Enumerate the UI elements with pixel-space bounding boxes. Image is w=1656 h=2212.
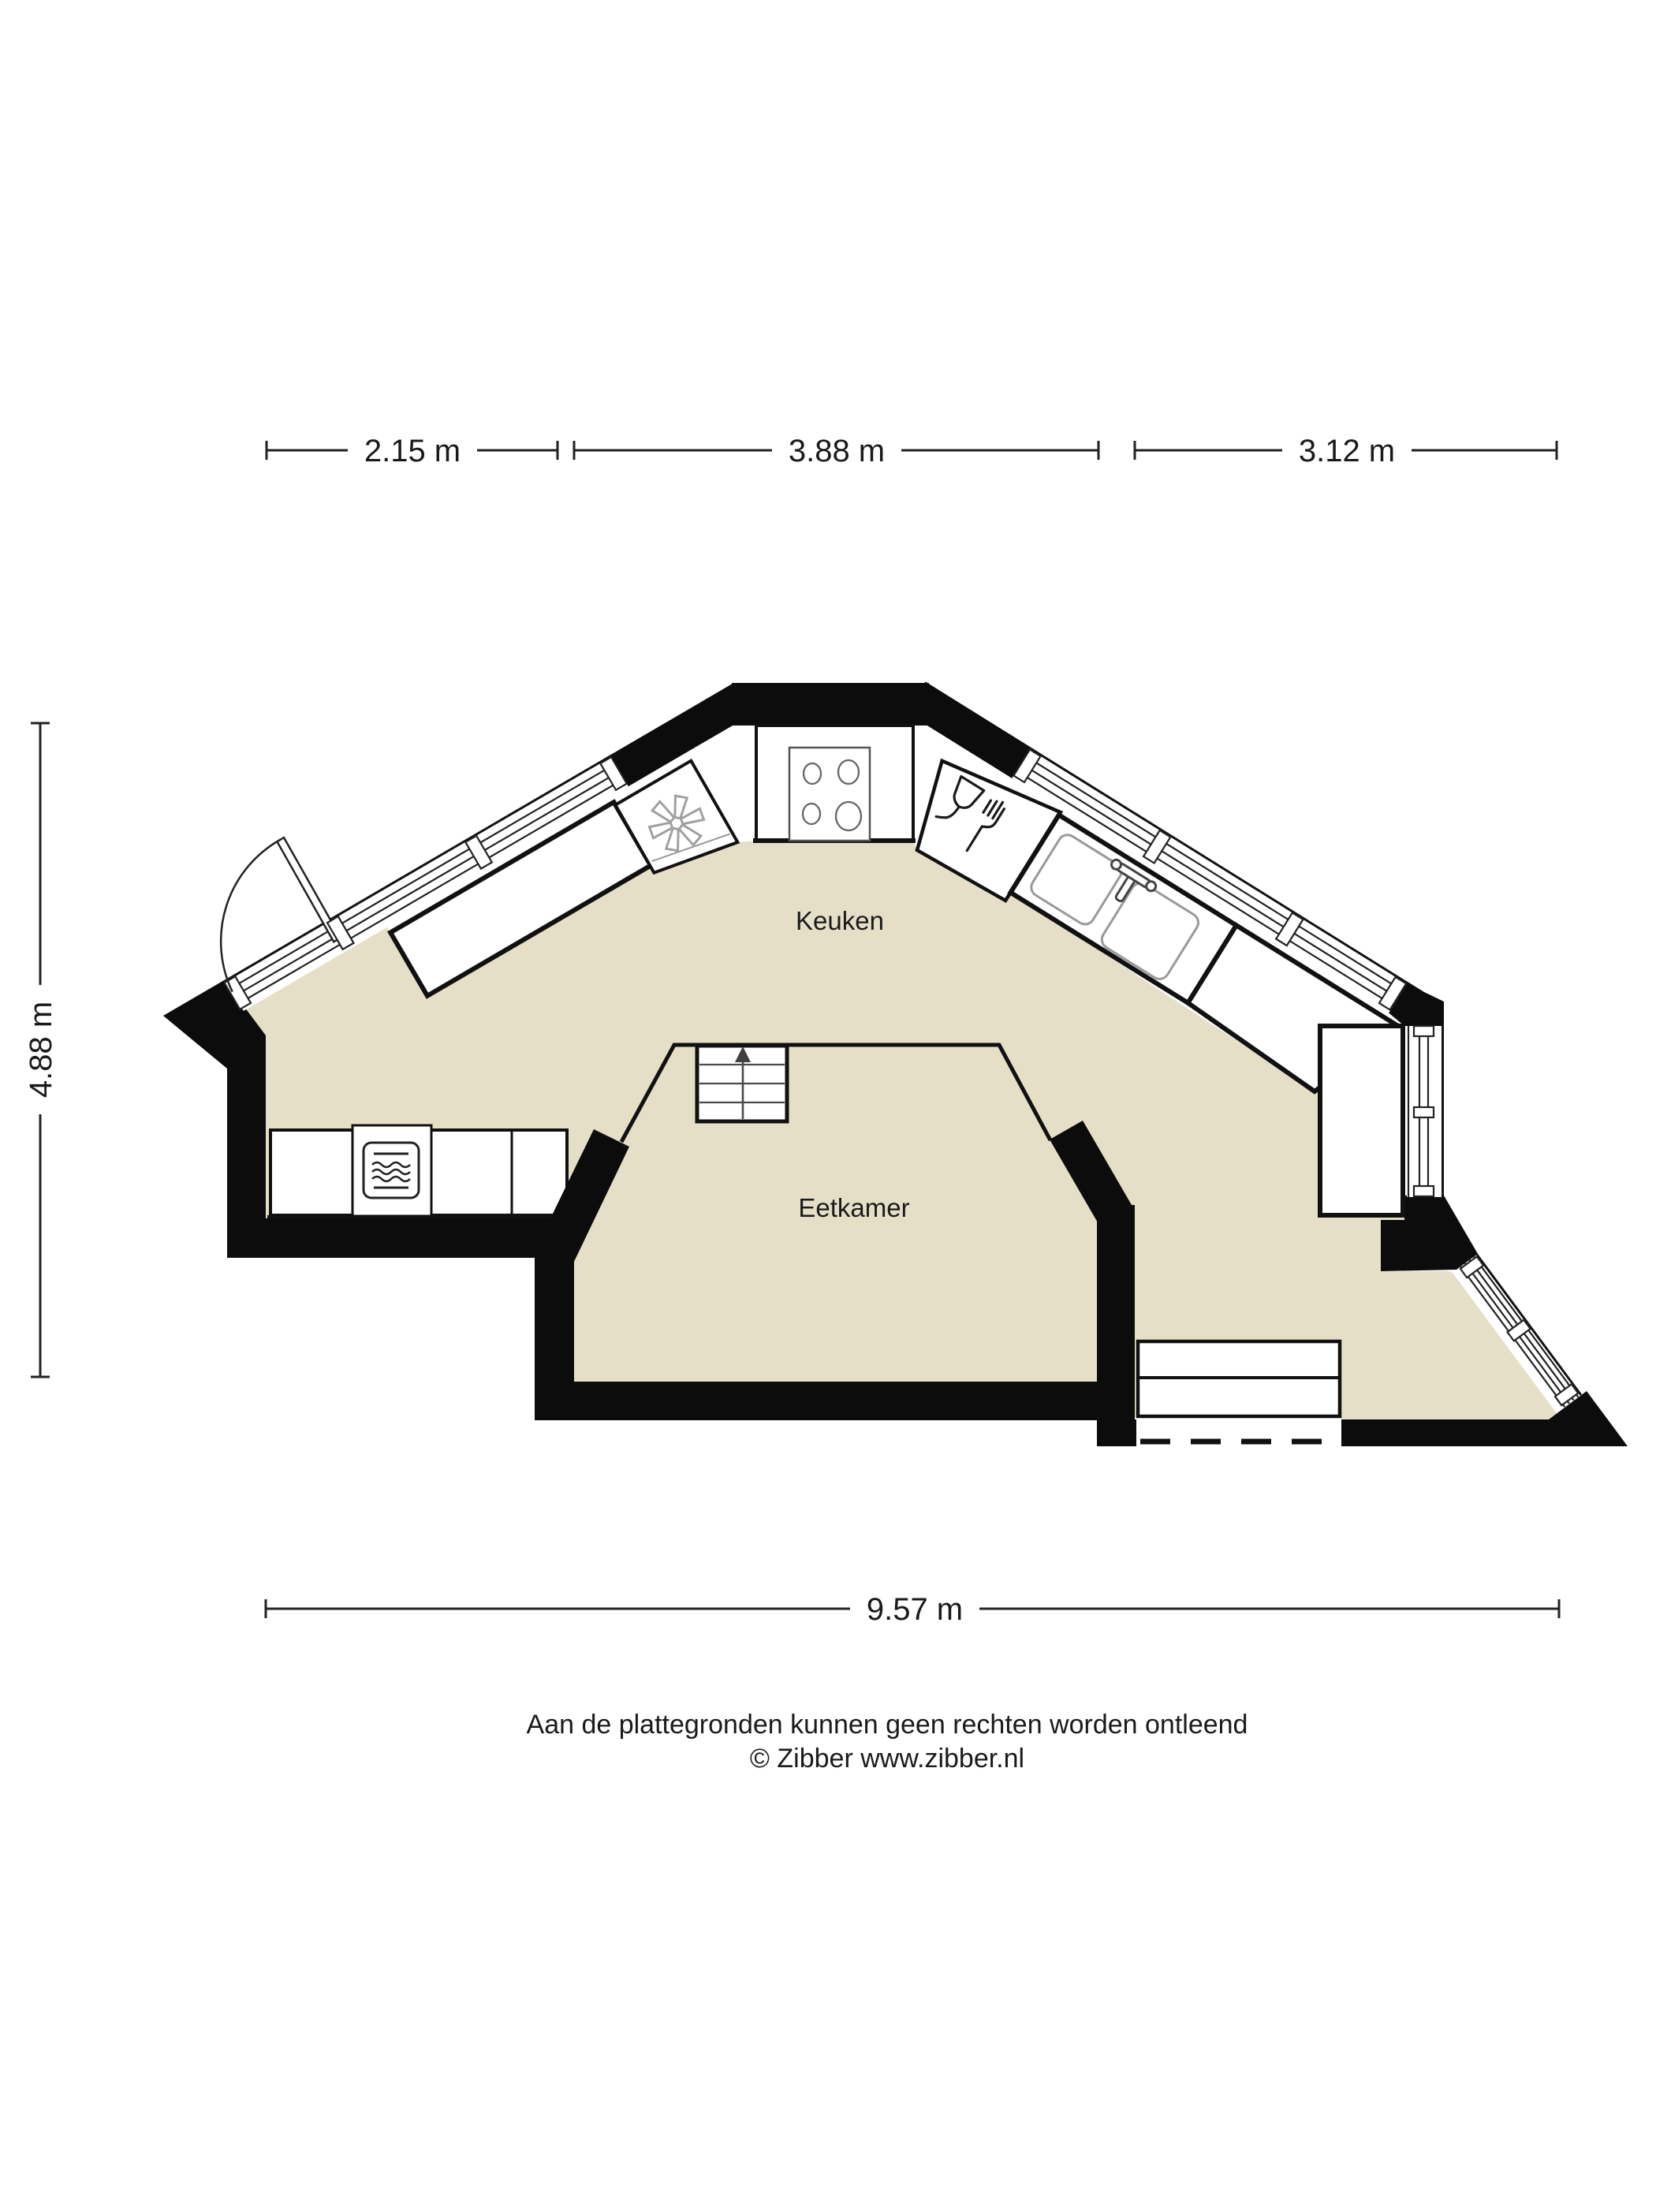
svg-text:4.88 m: 4.88 m — [24, 1002, 58, 1098]
svg-text:Keuken: Keuken — [796, 906, 884, 935]
svg-text:2.15 m: 2.15 m — [364, 434, 461, 468]
svg-text:Eetkamer: Eetkamer — [798, 1193, 909, 1222]
svg-text:9.57 m: 9.57 m — [867, 1592, 963, 1627]
svg-text:3.88 m: 3.88 m — [789, 434, 885, 468]
svg-text:3.12 m: 3.12 m — [1299, 434, 1395, 468]
svg-text:Aan de plattegronden kunnen ge: Aan de plattegronden kunnen geen rechten… — [527, 1710, 1248, 1740]
svg-text:© Zibber www.zibber.nl: © Zibber www.zibber.nl — [750, 1744, 1024, 1774]
